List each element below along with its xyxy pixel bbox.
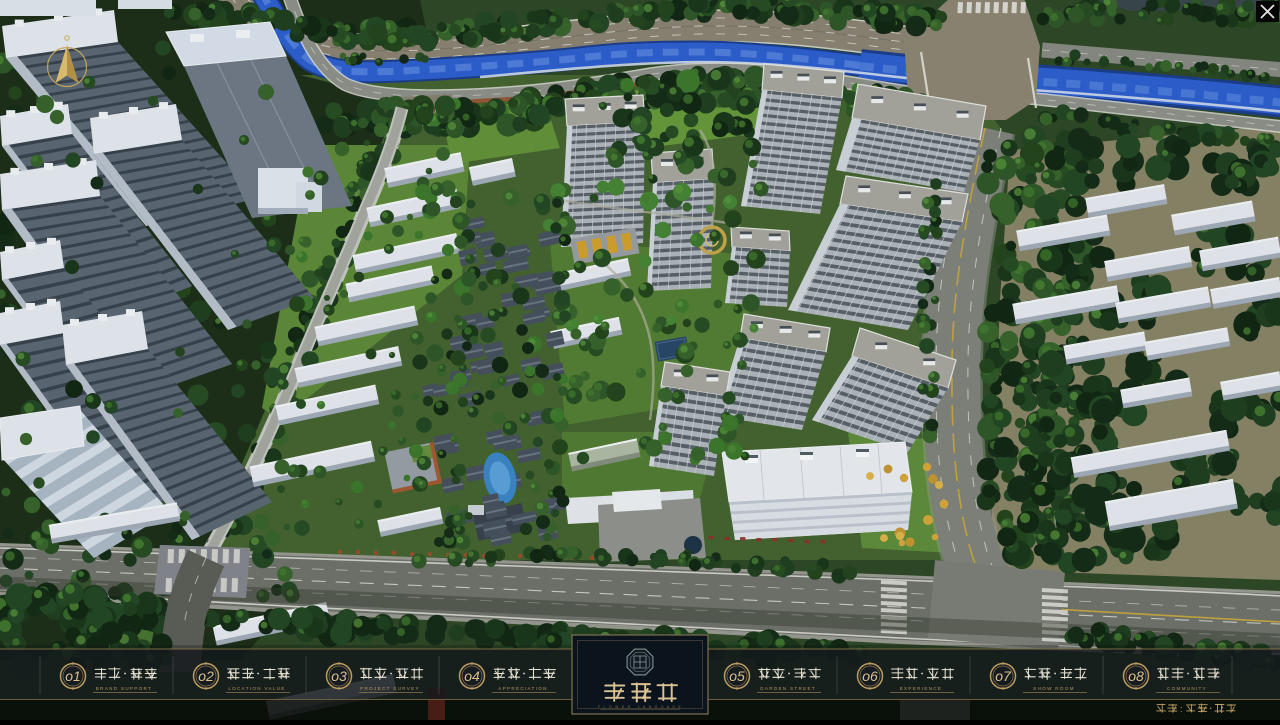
svg-text:o4: o4: [464, 668, 480, 684]
svg-text:PROJECT SURVEY: PROJECT SURVEY: [360, 686, 420, 691]
svg-text:COMMUNITY: COMMUNITY: [1167, 686, 1207, 691]
svg-text:SHOW ROOM: SHOW ROOM: [1033, 686, 1075, 691]
svg-text:o6: o6: [862, 668, 878, 684]
svg-text:F L O W E R L A N G U A G E: F L O W E R L A N G U A G E: [598, 705, 682, 709]
svg-text:LOCATION VALUE: LOCATION VALUE: [228, 686, 285, 691]
svg-text::: :: [1180, 704, 1183, 714]
svg-text:o2: o2: [198, 668, 214, 684]
svg-text:o1: o1: [65, 668, 81, 684]
svg-text:APPRECIATION: APPRECIATION: [498, 686, 547, 691]
svg-text:o7: o7: [995, 668, 1012, 684]
svg-text:GARDEN STREET: GARDEN STREET: [760, 686, 816, 691]
svg-text:BRAND SUPPORT: BRAND SUPPORT: [96, 686, 152, 691]
svg-text:o3: o3: [331, 668, 347, 684]
svg-text:o5: o5: [729, 668, 745, 684]
svg-text:EXPERIENCE: EXPERIENCE: [900, 686, 943, 691]
svg-text:o8: o8: [1128, 668, 1144, 684]
